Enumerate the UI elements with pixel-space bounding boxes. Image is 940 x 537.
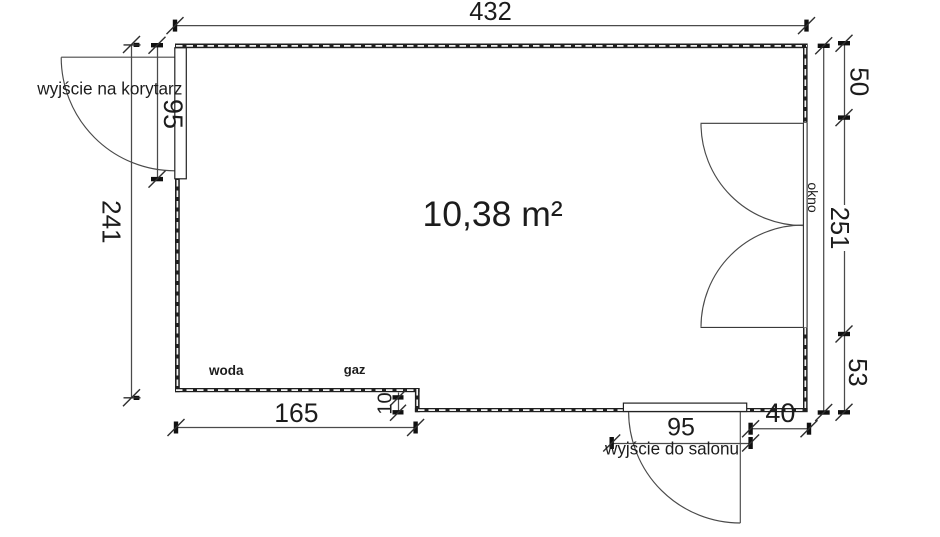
svg-text:okno: okno [805,182,821,213]
svg-text:woda: woda [208,363,244,378]
svg-text:95: 95 [158,99,188,129]
svg-text:40: 40 [765,398,795,428]
svg-text:241: 241 [97,200,127,243]
svg-text:gaz: gaz [344,362,366,377]
svg-text:10,38 m²: 10,38 m² [423,194,563,234]
svg-text:95: 95 [667,413,695,441]
svg-text:165: 165 [274,398,318,428]
svg-text:wyjście do salonu: wyjście do salonu [604,439,739,458]
svg-text:10: 10 [375,392,397,414]
svg-text:wyjście na korytarz: wyjście na korytarz [36,79,182,99]
svg-text:53: 53 [843,358,871,386]
svg-text:50: 50 [845,67,875,96]
svg-text:251: 251 [825,207,853,250]
svg-text:432: 432 [469,0,512,26]
